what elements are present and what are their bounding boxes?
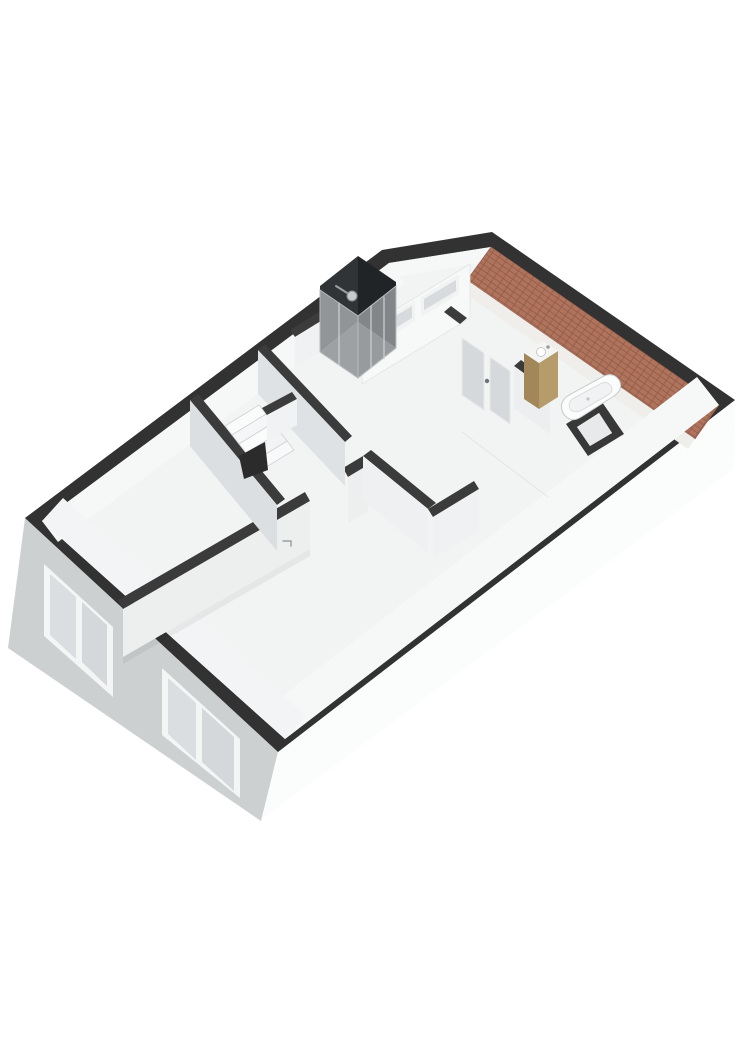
floorplan-3d-render [0,0,743,1050]
bathtub-drain [586,397,589,400]
shapes-layer [8,232,735,821]
vanity-basin [537,348,546,357]
vanity-faucet [546,345,550,349]
floorplan-viewport [0,0,743,1050]
shower-head [347,291,357,301]
bathroom-door-handle [485,379,489,383]
